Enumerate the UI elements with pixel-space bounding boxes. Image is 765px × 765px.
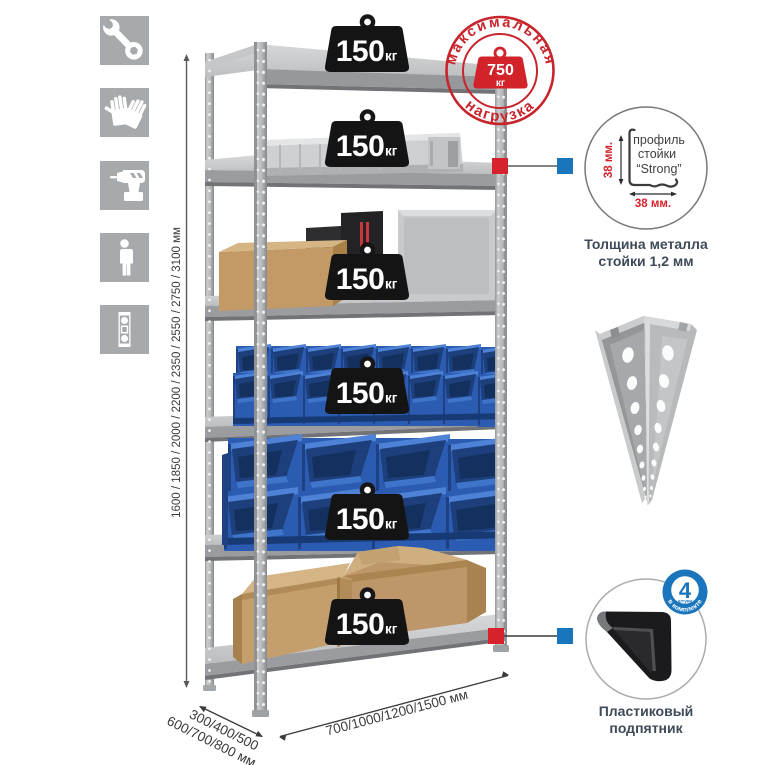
svg-text:профиль: профиль: [633, 133, 685, 147]
svg-text:38 мм.: 38 мм.: [603, 142, 615, 178]
svg-text:штуки: штуки: [678, 600, 693, 605]
svg-text:Толщина металла: Толщина металла: [584, 236, 708, 252]
svg-text:подпятник: подпятник: [609, 720, 683, 736]
svg-text:1600 / 1850 / 2000 / 2200 / 23: 1600 / 1850 / 2000 / 2200 / 2350 / 2550 …: [171, 227, 183, 518]
svg-text:кг: кг: [496, 78, 505, 89]
svg-text:750: 750: [487, 62, 514, 79]
svg-text:700/1000/1200/1500 мм: 700/1000/1200/1500 мм: [324, 687, 469, 739]
svg-text:38 мм.: 38 мм.: [635, 198, 671, 210]
svg-text:Пластиковый: Пластиковый: [599, 703, 694, 719]
svg-text:стойки 1,2 мм: стойки 1,2 мм: [598, 253, 693, 269]
svg-text:“Strong”: “Strong”: [636, 162, 681, 176]
svg-text:стойки: стойки: [638, 147, 676, 161]
